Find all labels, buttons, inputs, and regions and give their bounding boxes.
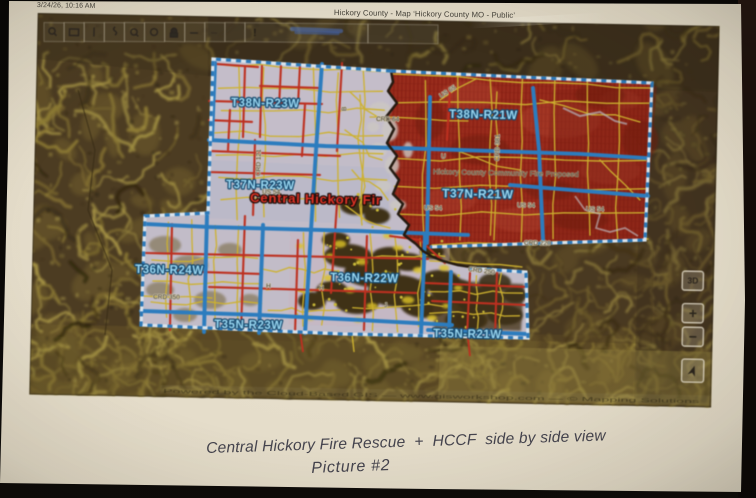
svg-text:B: B xyxy=(341,107,348,111)
svg-text:3D: 3D xyxy=(687,276,698,286)
svg-text:CRD 220: CRD 220 xyxy=(524,240,551,248)
svg-text:CRD 350: CRD 350 xyxy=(153,294,180,302)
svg-text:US 54: US 54 xyxy=(262,189,281,196)
svg-text:!: ! xyxy=(253,27,257,39)
svg-text:CRD 381: CRD 381 xyxy=(494,134,502,161)
svg-text:US 54: US 54 xyxy=(424,205,443,212)
svg-text:H: H xyxy=(319,285,324,292)
svg-text:T38N-R21W: T38N-R21W xyxy=(449,109,518,122)
svg-text:T36N-R24W: T36N-R24W xyxy=(135,264,204,277)
svg-text:US 54: US 54 xyxy=(517,202,536,209)
svg-text:H: H xyxy=(266,283,271,290)
svg-text:+: + xyxy=(689,305,698,321)
svg-text:CRD 121: CRD 121 xyxy=(255,149,263,176)
svg-text:T38N-R23W: T38N-R23W xyxy=(231,97,300,110)
svg-text:T35N-R21W: T35N-R21W xyxy=(433,328,502,341)
svg-text:US 54: US 54 xyxy=(586,206,605,213)
svg-text:T35N-R23W: T35N-R23W xyxy=(214,319,283,332)
svg-text:T36N-R22W: T36N-R22W xyxy=(330,272,399,285)
svg-text:−: − xyxy=(689,329,698,345)
svg-text:J: J xyxy=(384,302,387,309)
svg-text:CRD 64: CRD 64 xyxy=(376,116,400,123)
svg-text:T37N-R21W: T37N-R21W xyxy=(442,186,514,201)
svg-text:U: U xyxy=(441,153,446,160)
